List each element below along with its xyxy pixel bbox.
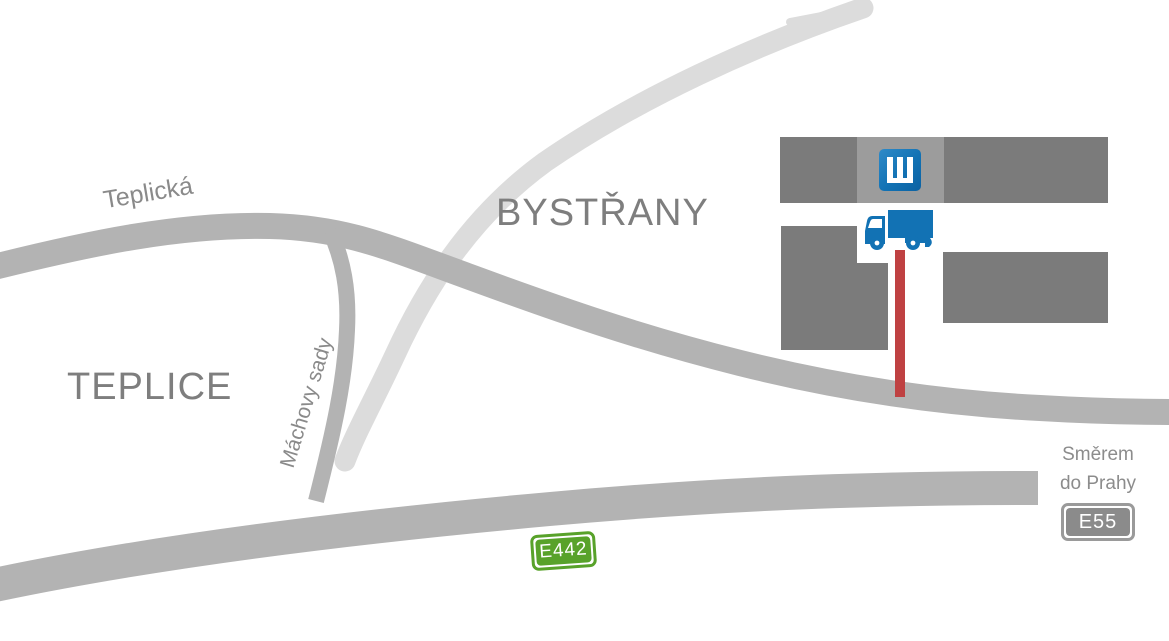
- buildings: [780, 137, 1108, 350]
- city-label-teplice: TEPLICE: [67, 366, 232, 409]
- road-badge-e55-label: E55: [1066, 508, 1130, 536]
- road-badge-e55: E55: [1061, 503, 1135, 541]
- building-top-right: [944, 137, 1108, 203]
- road-badge-e442-label: E442: [535, 536, 592, 566]
- direction-label: Směrem do Prahy: [1038, 440, 1158, 498]
- direction-line1: Směrem: [1038, 440, 1158, 469]
- city-label-bystrany: BYSTŘANY: [496, 192, 709, 235]
- building-top-left: [780, 137, 857, 203]
- company-logo-icon: [879, 149, 921, 191]
- building-right: [943, 252, 1108, 323]
- route-highlight-line: [895, 250, 905, 397]
- road-highway: [0, 488, 1038, 586]
- road-badge-e442: E442: [530, 531, 597, 571]
- direction-line2: do Prahy: [1038, 469, 1158, 498]
- truck-icon: [865, 210, 933, 250]
- map-canvas: Teplická Máchovy sady BYSTŘANY TEPLICE S…: [0, 0, 1169, 641]
